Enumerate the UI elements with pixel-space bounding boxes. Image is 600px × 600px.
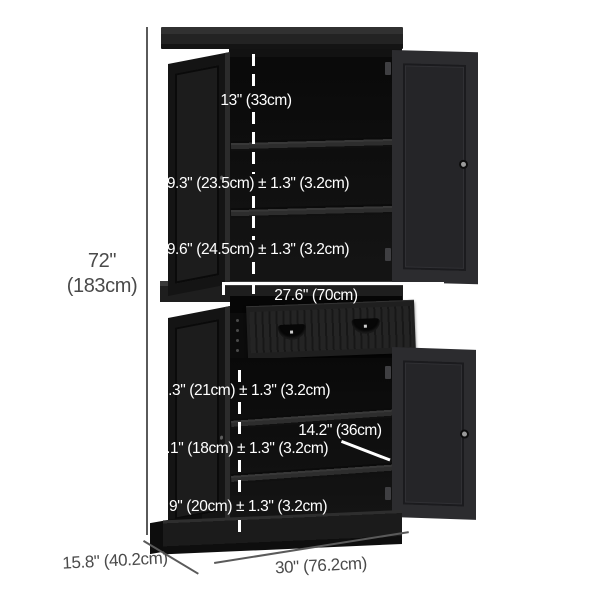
depth-label: 15.8" (40.2cm) <box>52 548 179 575</box>
lower-dashed-line-seg4 <box>238 520 241 538</box>
drawer-front <box>246 300 416 359</box>
lower-dashed-line-seg3 <box>238 460 241 496</box>
lower-left-door-panel <box>175 319 219 520</box>
width-label: 30" (76.2cm) <box>258 553 385 580</box>
lower-right-door <box>392 347 476 520</box>
drawer-width-line <box>222 282 444 285</box>
upper-dashed-line-seg3 <box>252 196 255 240</box>
upper-shelf-spacing-1-label: 9.3" (23.5cm) ± 1.3" (3.2cm) <box>167 175 349 193</box>
lower-shelf-spacing-1-label: 8.3" (21cm) ± 1.3" (3.2cm) <box>160 382 330 400</box>
lower-shelf-spacing-3-label: 7.9" (20cm) ± 1.3" (3.2cm) <box>157 498 327 516</box>
upper-right-door-knob <box>461 162 466 167</box>
product-dimension-diagram: 72" (183cm) 15.8" (40.2cm) 30" (76.2cm) … <box>0 0 600 600</box>
upper-right-door-hinge-bottom <box>385 248 391 261</box>
height-label: 72" (183cm) <box>60 249 144 299</box>
top-opening-height-label: 13" (33cm) <box>220 92 291 110</box>
height-value-in: 72" <box>60 249 144 274</box>
upper-dashed-line-seg1 <box>252 54 255 92</box>
drawer-width-line-tick-left <box>222 285 225 295</box>
lower-right-door-knob <box>462 431 467 436</box>
drawer-beadboard <box>249 306 412 353</box>
upper-dashed-line-seg2 <box>252 112 255 174</box>
lower-dashed-line-seg2 <box>238 402 241 438</box>
upper-shelf-spacing-2-label: 9.6" (24.5cm) ± 1.3" (3.2cm) <box>167 241 349 259</box>
lower-right-door-hinge-top <box>385 366 391 379</box>
height-dimension-line <box>146 27 148 535</box>
height-value-cm: (183cm) <box>60 274 144 299</box>
shelf-depth-label: 14.2" (36cm) <box>298 422 381 440</box>
upper-right-door-panel <box>403 63 466 271</box>
drawer-width-label: 27.6" (70cm) <box>274 287 357 305</box>
drawer-slide <box>227 313 248 358</box>
lower-shelf-spacing-2-label: 7.1" (18cm) ± 1.3" (3.2cm) <box>158 440 328 458</box>
drawer-width-line-tick-right <box>441 285 444 295</box>
lower-dashed-line-seg1 <box>238 370 241 382</box>
lower-right-door-panel <box>403 360 464 506</box>
lower-right-door-hinge-bottom <box>385 487 391 500</box>
upper-right-door <box>392 50 478 284</box>
upper-right-door-hinge-top <box>385 62 391 75</box>
crown-top <box>161 27 403 49</box>
